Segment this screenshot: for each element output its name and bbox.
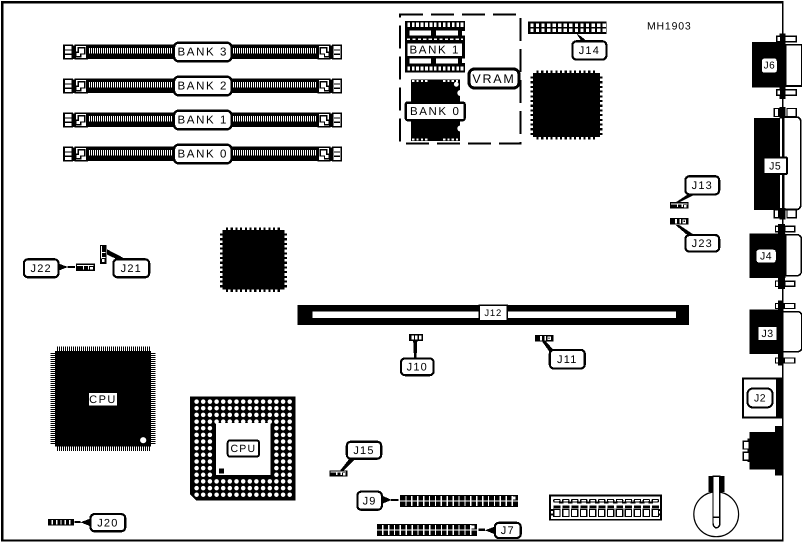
svg-text:J4: J4 [760, 251, 772, 263]
svg-text:J20: J20 [97, 517, 118, 529]
svg-text:J5: J5 [769, 160, 781, 172]
svg-text:VRAM: VRAM [472, 72, 515, 86]
svg-text:BANK 1: BANK 1 [410, 44, 461, 56]
svg-text:J9: J9 [363, 495, 377, 507]
svg-text:BANK 2: BANK 2 [178, 81, 229, 93]
svg-text:BANK 1: BANK 1 [178, 115, 229, 127]
svg-text:BANK 0: BANK 0 [410, 106, 461, 118]
svg-text:J14: J14 [579, 45, 600, 57]
svg-text:J7: J7 [501, 525, 515, 537]
svg-text:MH1903: MH1903 [647, 21, 692, 33]
svg-text:J21: J21 [121, 263, 142, 275]
svg-text:BANK 0: BANK 0 [178, 149, 229, 161]
svg-text:J12: J12 [484, 308, 502, 319]
svg-text:J2: J2 [754, 393, 766, 405]
svg-text:CPU: CPU [231, 443, 257, 455]
svg-text:J13: J13 [692, 180, 713, 192]
svg-text:BANK 3: BANK 3 [178, 47, 229, 59]
svg-text:J15: J15 [353, 445, 374, 457]
svg-text:J10: J10 [407, 361, 428, 373]
svg-text:J3: J3 [762, 328, 774, 340]
svg-text:J22: J22 [31, 263, 52, 275]
svg-text:J11: J11 [557, 354, 578, 366]
svg-text:CPU: CPU [89, 394, 117, 406]
svg-text:J6: J6 [764, 61, 776, 72]
svg-text:J23: J23 [692, 238, 713, 250]
